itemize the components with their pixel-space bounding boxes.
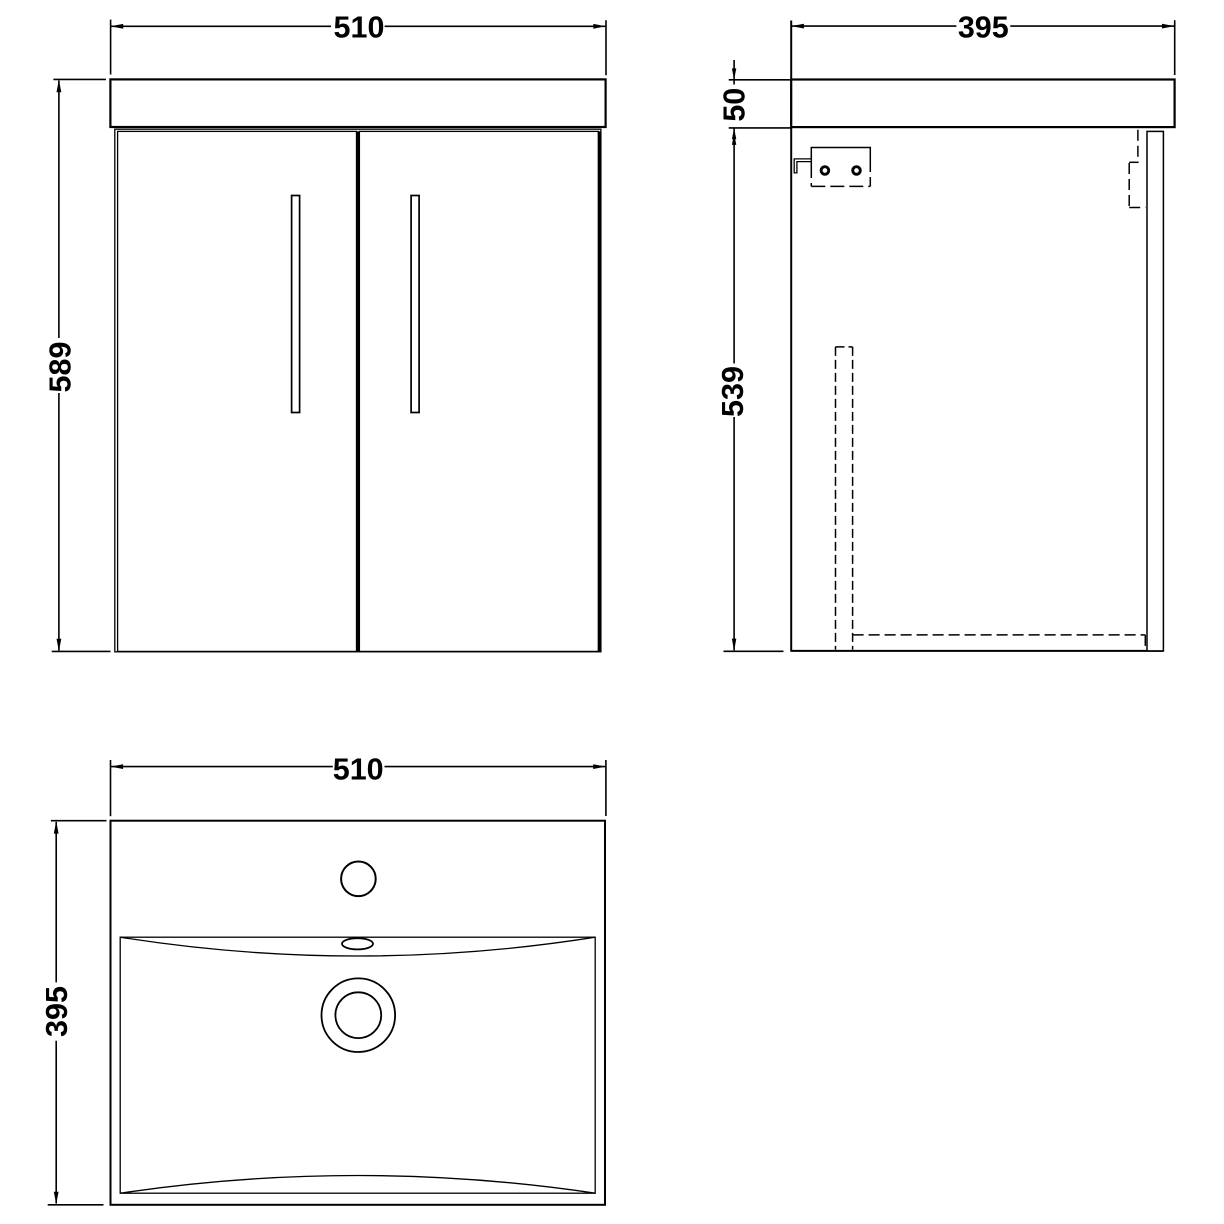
svg-text:395: 395: [958, 10, 1009, 44]
svg-text:50: 50: [717, 88, 751, 122]
svg-text:510: 510: [333, 752, 384, 786]
svg-text:539: 539: [716, 366, 750, 417]
svg-text:510: 510: [334, 11, 385, 45]
svg-text:589: 589: [44, 342, 78, 393]
svg-text:395: 395: [40, 986, 74, 1037]
